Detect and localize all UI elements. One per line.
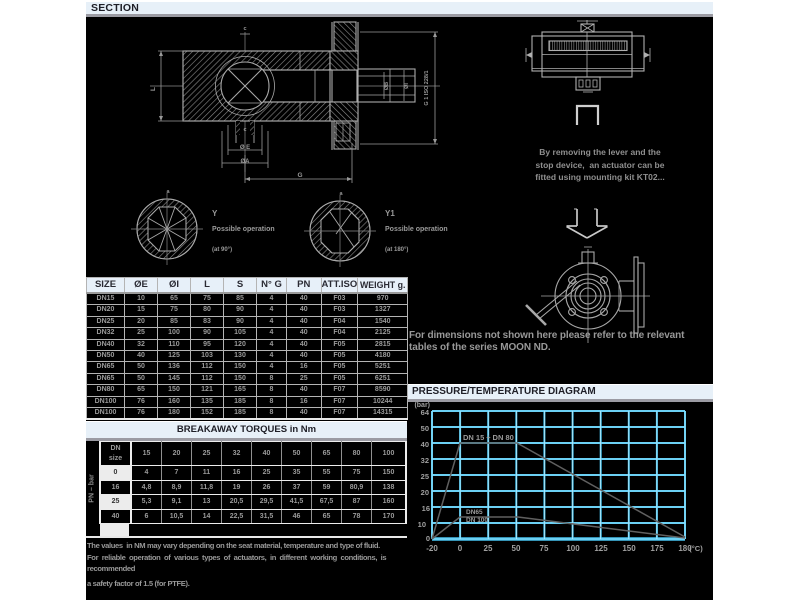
svg-text:64: 64 — [421, 408, 430, 417]
svg-text:(°C): (°C) — [689, 544, 703, 553]
svg-text:(at 90°): (at 90°) — [212, 247, 232, 253]
svg-text:25: 25 — [421, 472, 429, 481]
svg-text:G: G — [297, 172, 302, 179]
svg-text:40: 40 — [421, 440, 429, 449]
svg-text:10: 10 — [418, 520, 426, 529]
svg-text:175: 175 — [650, 544, 664, 553]
svg-text:-20: -20 — [426, 544, 438, 553]
svg-text:c: c — [243, 127, 246, 133]
svg-text:DN 15 ÷ DN 80: DN 15 ÷ DN 80 — [463, 433, 514, 442]
svg-text:50: 50 — [512, 544, 521, 553]
svg-text:Possible operation: Possible operation — [385, 226, 448, 233]
svg-text:(at 180°): (at 180°) — [385, 247, 408, 253]
svg-text:L: L — [150, 87, 157, 91]
svg-text:125: 125 — [594, 544, 608, 553]
svg-text:DN65: DN65 — [466, 509, 483, 516]
svg-text:ØB: ØB — [384, 82, 390, 90]
svg-text:0: 0 — [458, 544, 463, 553]
svg-text:DN 100: DN 100 — [466, 517, 488, 524]
svg-text:ØI: ØI — [404, 83, 410, 89]
svg-text:c: c — [243, 26, 246, 32]
svg-text:0: 0 — [426, 534, 430, 543]
svg-text:100: 100 — [566, 544, 580, 553]
svg-text:20: 20 — [421, 488, 429, 497]
svg-text:Y1: Y1 — [385, 209, 395, 218]
svg-text:ØA: ØA — [241, 159, 251, 165]
svg-text:Y: Y — [212, 209, 218, 218]
svg-text:75: 75 — [540, 544, 549, 553]
svg-text:50: 50 — [421, 424, 429, 433]
svg-text:G 1 ISO 228/1: G 1 ISO 228/1 — [424, 70, 430, 105]
svg-text:32: 32 — [421, 456, 429, 465]
svg-text:16: 16 — [422, 504, 430, 513]
svg-text:Ø E: Ø E — [240, 145, 250, 151]
svg-text:25: 25 — [484, 544, 493, 553]
svg-text:Possible operation: Possible operation — [212, 226, 275, 233]
svg-text:150: 150 — [622, 544, 636, 553]
